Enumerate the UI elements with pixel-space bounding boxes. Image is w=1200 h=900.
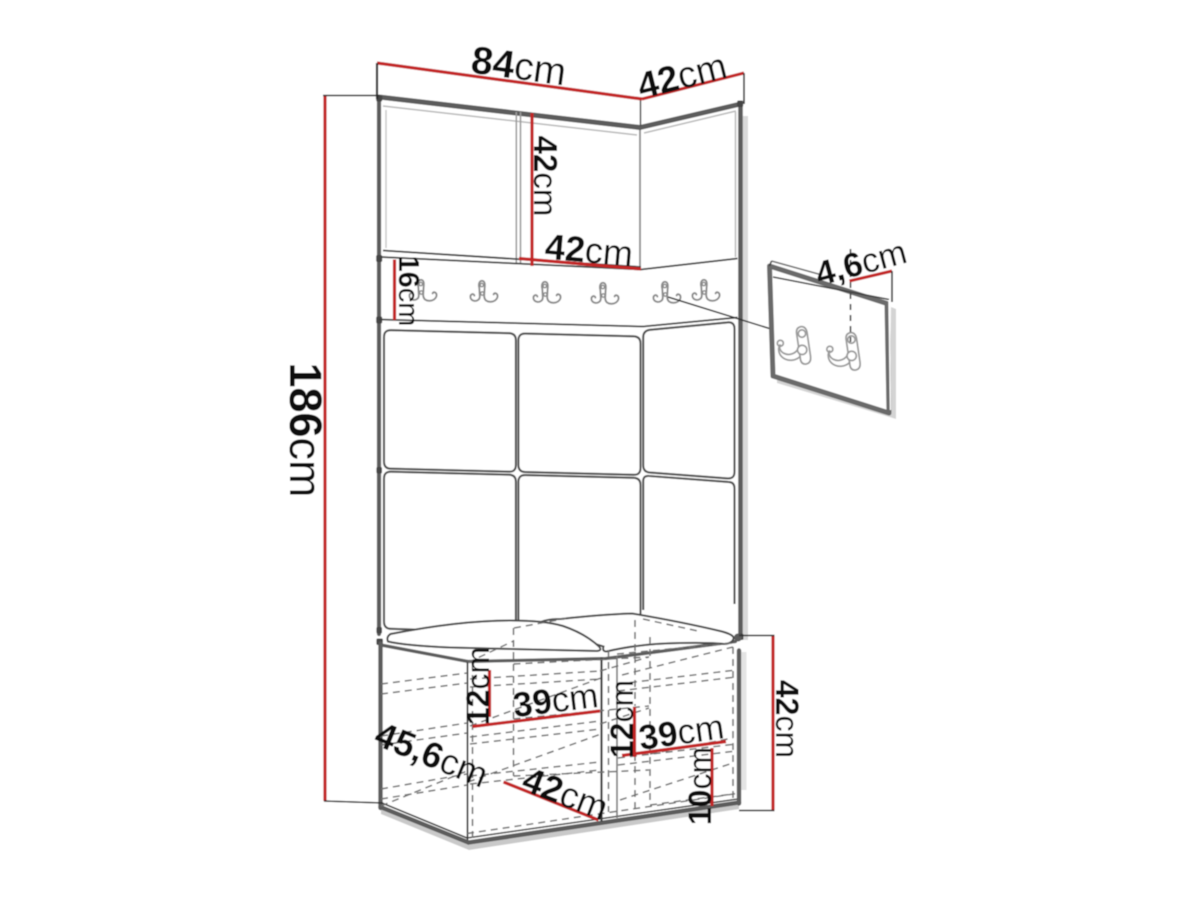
svg-text:16cm: 16cm [392, 256, 424, 327]
svg-text:12cm: 12cm [460, 647, 496, 725]
svg-text:42cm: 42cm [769, 680, 805, 758]
svg-text:10cm: 10cm [682, 747, 718, 825]
svg-text:12cm: 12cm [604, 680, 640, 758]
svg-text:186cm: 186cm [280, 362, 331, 497]
svg-text:42cm: 42cm [543, 226, 634, 275]
svg-text:42cm: 42cm [527, 136, 564, 217]
